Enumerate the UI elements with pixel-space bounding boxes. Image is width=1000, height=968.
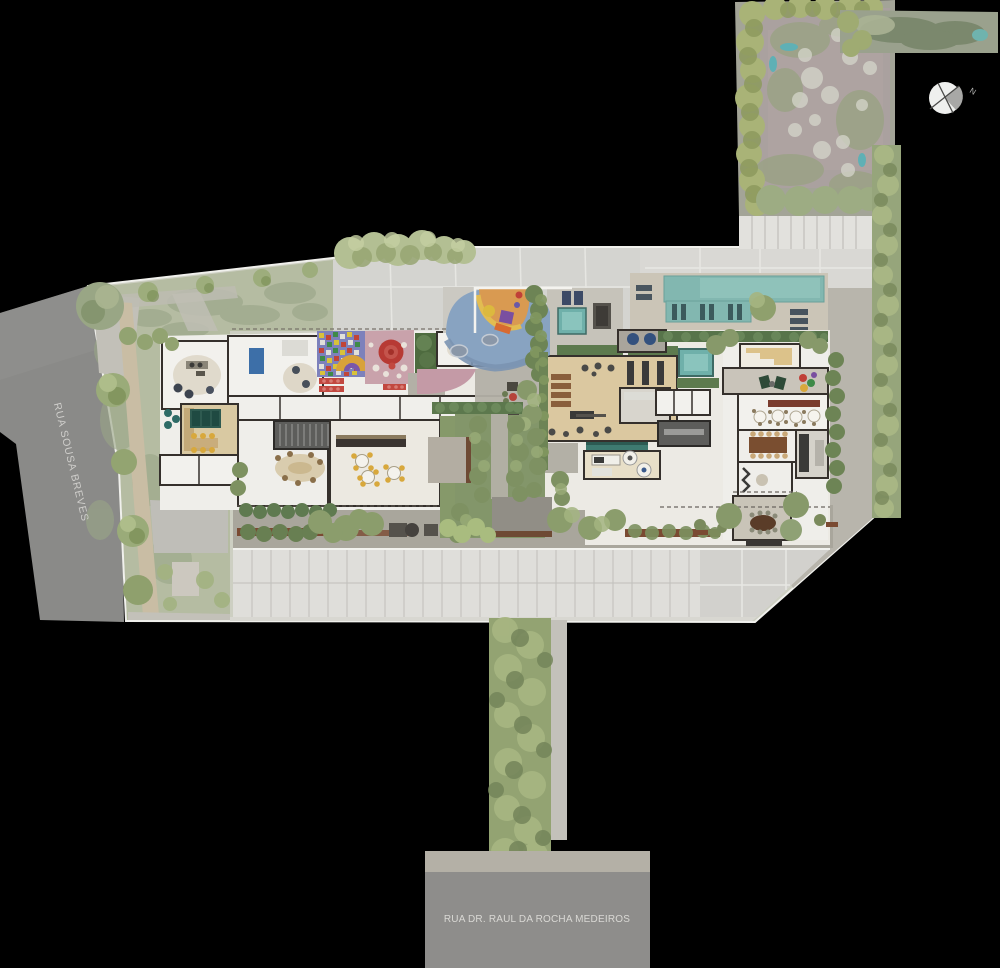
svg-text:RUA DR. RAUL DA ROCHA MEDEIROS: RUA DR. RAUL DA ROCHA MEDEIROS	[444, 914, 630, 925]
